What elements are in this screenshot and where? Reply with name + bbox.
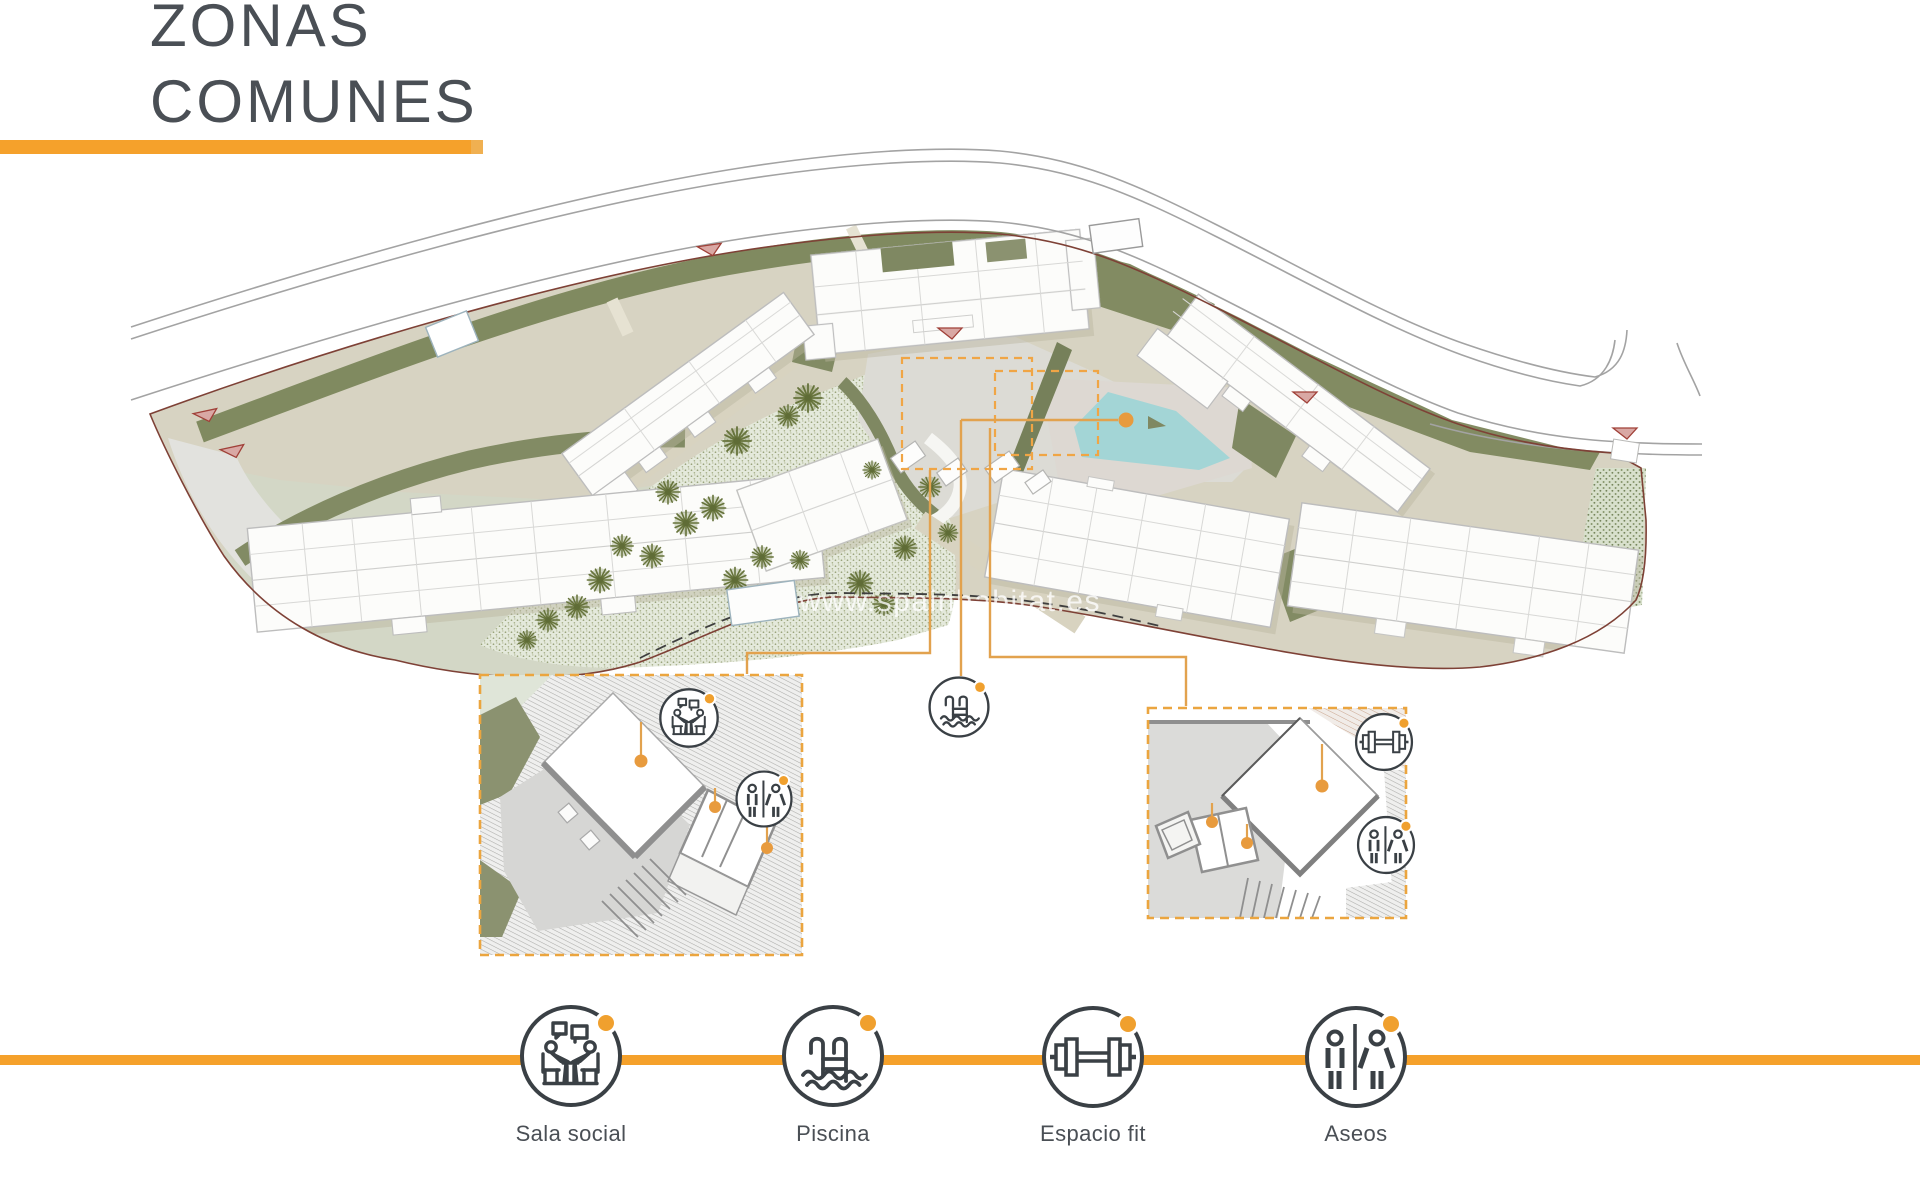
svg-text:Sala social: Sala social bbox=[516, 1121, 627, 1146]
svg-text:Aseos: Aseos bbox=[1324, 1121, 1387, 1146]
svg-text:COMUNES: COMUNES bbox=[150, 68, 478, 135]
svg-text:www.spainhabitat.es: www.spainhabitat.es bbox=[798, 585, 1101, 618]
svg-text:Piscina: Piscina bbox=[796, 1121, 870, 1146]
svg-text:ZONAS: ZONAS bbox=[150, 0, 372, 59]
svg-text:Espacio fit: Espacio fit bbox=[1040, 1121, 1146, 1146]
